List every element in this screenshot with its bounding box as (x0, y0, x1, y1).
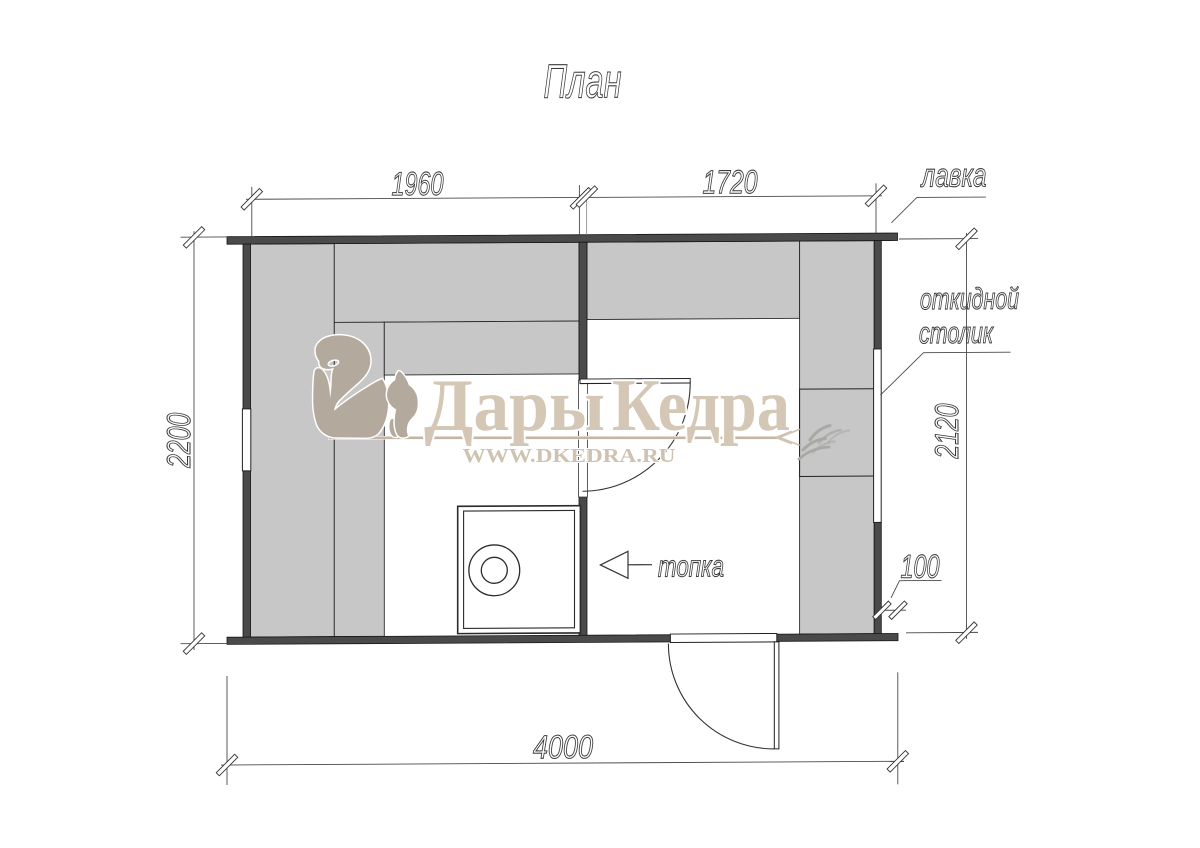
svg-text:1720: 1720 (703, 163, 758, 200)
svg-text:2120: 2120 (928, 403, 965, 459)
svg-text:WWW.DKEDRA.RU: WWW.DKEDRA.RU (463, 445, 676, 467)
svg-text:Дары: Дары (424, 365, 605, 447)
svg-text:100: 100 (900, 548, 939, 585)
svg-text:лавка: лавка (920, 156, 986, 193)
svg-text:откидной: откидной (920, 283, 1019, 317)
svg-text:топка: топка (658, 550, 724, 583)
svg-text:2200: 2200 (160, 412, 197, 468)
svg-text:4000: 4000 (533, 728, 594, 765)
svg-text:Кедра: Кедра (612, 365, 790, 447)
svg-text:1960: 1960 (392, 165, 444, 202)
svg-text:столик: столик (919, 317, 994, 350)
svg-text:План: План (544, 55, 622, 108)
